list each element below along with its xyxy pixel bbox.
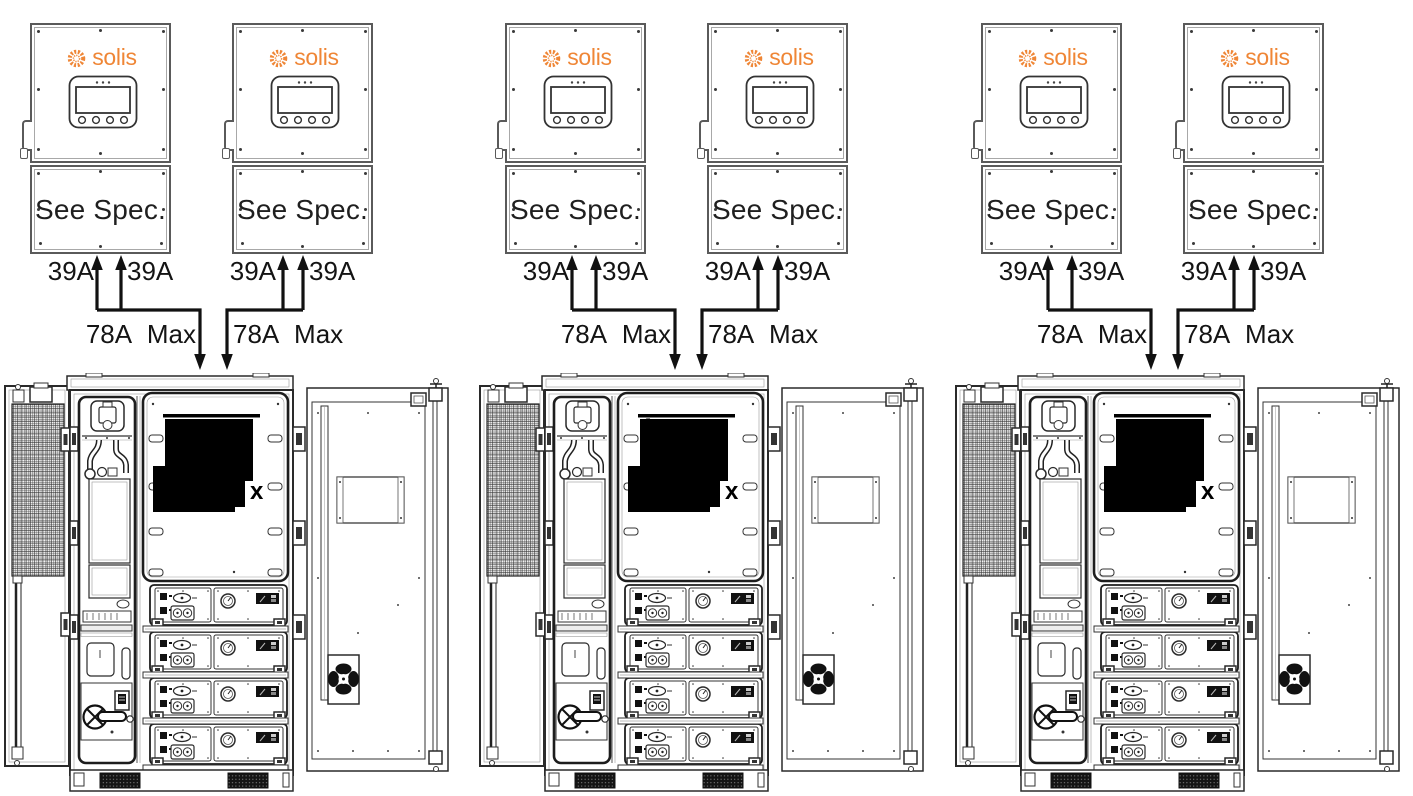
diagram-canvas: solis See Spec. solis (0, 0, 1413, 796)
inverter-display (270, 75, 340, 129)
screws (714, 172, 717, 175)
spec-label: See Spec. (986, 194, 1117, 226)
bottom-vent (100, 773, 140, 788)
inverter-spec-panel: See Spec. (232, 165, 373, 254)
spec-label: See Spec. (237, 194, 368, 226)
inverter-unit: solis See Spec. (707, 23, 848, 254)
current-label: 39A (703, 258, 751, 284)
mounting-plate (1288, 477, 1355, 523)
brand-wordmark: solis (294, 46, 339, 69)
current-label: 39A (1260, 258, 1308, 284)
solis-logo: solis (32, 46, 169, 71)
bottom-vent (703, 773, 743, 788)
module-label (1207, 593, 1230, 604)
solis-logo: solis (709, 46, 846, 71)
mounting-plate (812, 477, 879, 523)
wall-bracket (1175, 120, 1185, 151)
brand-wordmark: solis (1043, 46, 1088, 69)
display-slot (68, 75, 138, 129)
inverter-front-panel: solis (707, 23, 848, 163)
inverter-spec-panel: See Spec. (981, 165, 1122, 254)
current-label: 39A (127, 258, 175, 284)
inverter-unit: solis See Spec. (232, 23, 373, 254)
cabinet-top-cap (1018, 373, 1244, 390)
inverter-display (1019, 75, 1089, 129)
inverter-battery-group-1: solis See Spec. solis (0, 0, 455, 796)
solis-sun-icon (1015, 46, 1040, 71)
inverter-unit: solis See Spec. (30, 23, 171, 254)
vent-grille (12, 404, 64, 576)
current-label: 39A (1078, 258, 1126, 284)
door-fan (1279, 655, 1310, 704)
screws (37, 30, 40, 33)
wall-bracket (973, 120, 983, 151)
current-label: 39A (997, 258, 1045, 284)
battery-module (1101, 585, 1238, 626)
bottom-rail (70, 770, 293, 791)
solis-logo: solis (507, 46, 644, 71)
battery-module (625, 585, 762, 626)
display-slot (270, 75, 340, 129)
screws (988, 30, 991, 33)
inverter-unit: solis See Spec. (1183, 23, 1324, 254)
right-door (782, 379, 923, 772)
solis-sun-icon (64, 46, 89, 71)
left-door (5, 383, 70, 766)
max-current-label: 78A Max (708, 321, 844, 347)
inverter-front-panel: solis (232, 23, 373, 163)
screws (239, 30, 242, 33)
solis-sun-icon (266, 46, 291, 71)
battery-cabinet (3, 373, 450, 793)
cabinet-body (1021, 390, 1256, 791)
solis-logo: solis (983, 46, 1120, 71)
screws (512, 172, 515, 175)
inverter-spec-panel: See Spec. (30, 165, 171, 254)
module-label (256, 593, 279, 604)
screws (714, 30, 717, 33)
redaction-blob (153, 414, 260, 512)
battery-cabinet-art (954, 373, 1401, 793)
wall-bracket (22, 120, 32, 151)
screws (239, 172, 242, 175)
vent-grille (963, 404, 1015, 576)
battery-module (150, 585, 287, 626)
battery-cabinet (478, 373, 925, 793)
spec-label: See Spec. (1188, 194, 1319, 226)
upper-panel (143, 393, 288, 581)
current-label: 39A (1179, 258, 1227, 284)
brand-wordmark: solis (769, 46, 814, 69)
vent-grille (487, 404, 539, 576)
inverter-unit: solis See Spec. (981, 23, 1122, 254)
brand-wordmark: solis (92, 46, 137, 69)
display-slot (1221, 75, 1291, 129)
current-label: 39A (309, 258, 357, 284)
solis-sun-icon (1217, 46, 1242, 71)
bottom-vent (575, 773, 615, 788)
redacted-text: x (725, 480, 738, 504)
screws (988, 172, 991, 175)
module-label (731, 593, 754, 604)
battery-cabinet-art (478, 373, 925, 793)
control-column (554, 397, 610, 763)
bottom-vent (1179, 773, 1219, 788)
redacted-text: x (1201, 480, 1214, 504)
inverter-front-panel: solis (30, 23, 171, 163)
inverter-battery-group-3: solis See Spec. solis (951, 0, 1406, 796)
display-slot (543, 75, 613, 129)
redacted-text: x (250, 480, 263, 504)
battery-cabinet (954, 373, 1401, 793)
cabinet-body (545, 390, 780, 791)
door-fan (328, 655, 359, 704)
max-current-label: 78A Max (1011, 321, 1147, 347)
control-column (79, 397, 135, 763)
inverter-front-panel: solis (981, 23, 1122, 163)
inverter-spec-panel: See Spec. (707, 165, 848, 254)
spec-label: See Spec. (712, 194, 843, 226)
solis-logo: solis (1185, 46, 1322, 71)
inverter-battery-group-2: solis See Spec. solis (475, 0, 930, 796)
redacted-text: 1 (640, 415, 655, 442)
current-label: 39A (784, 258, 832, 284)
redaction-blob (1104, 414, 1211, 512)
cabinet-top-cap (542, 373, 768, 390)
solis-sun-icon (539, 46, 564, 71)
max-current-label: 78A Max (1184, 321, 1320, 347)
wall-bracket (699, 120, 709, 151)
right-door (307, 379, 448, 772)
brand-wordmark: solis (567, 46, 612, 69)
current-label: 39A (602, 258, 650, 284)
current-label: 39A (521, 258, 569, 284)
inverter-display (1221, 75, 1291, 129)
max-current-label: 78A Max (60, 321, 196, 347)
screws (37, 172, 40, 175)
brand-wordmark: solis (1245, 46, 1290, 69)
spec-label: See Spec. (35, 194, 166, 226)
wall-bracket (224, 120, 234, 151)
screws (1190, 172, 1193, 175)
display-slot (1019, 75, 1089, 129)
current-label: 39A (228, 258, 276, 284)
bottom-vent (228, 773, 268, 788)
inverter-display (745, 75, 815, 129)
left-door (480, 383, 545, 766)
display-slot (745, 75, 815, 129)
door-fan (803, 655, 834, 704)
inverter-front-panel: solis (505, 23, 646, 163)
control-column (1030, 397, 1086, 763)
inverter-display (68, 75, 138, 129)
bottom-rail (1021, 770, 1244, 791)
screws (1190, 30, 1193, 33)
max-current-label: 78A Max (233, 321, 369, 347)
bottom-vent (1051, 773, 1091, 788)
right-door (1258, 379, 1399, 772)
wall-bracket (497, 120, 507, 151)
solis-logo: solis (234, 46, 371, 71)
inverter-spec-panel: See Spec. (1183, 165, 1324, 254)
inverter-front-panel: solis (1183, 23, 1324, 163)
current-label: 39A (46, 258, 94, 284)
mounting-plate (337, 477, 404, 523)
screws (512, 30, 515, 33)
battery-cabinet-art (3, 373, 450, 793)
cabinet-top-cap (67, 373, 293, 390)
max-current-label: 78A Max (535, 321, 671, 347)
spec-label: See Spec. (510, 194, 641, 226)
bottom-rail (545, 770, 768, 791)
upper-panel (1094, 393, 1239, 581)
left-door (956, 383, 1021, 766)
solis-sun-icon (741, 46, 766, 71)
inverter-unit: solis See Spec. (505, 23, 646, 254)
inverter-spec-panel: See Spec. (505, 165, 646, 254)
cabinet-body (70, 390, 305, 791)
inverter-display (543, 75, 613, 129)
